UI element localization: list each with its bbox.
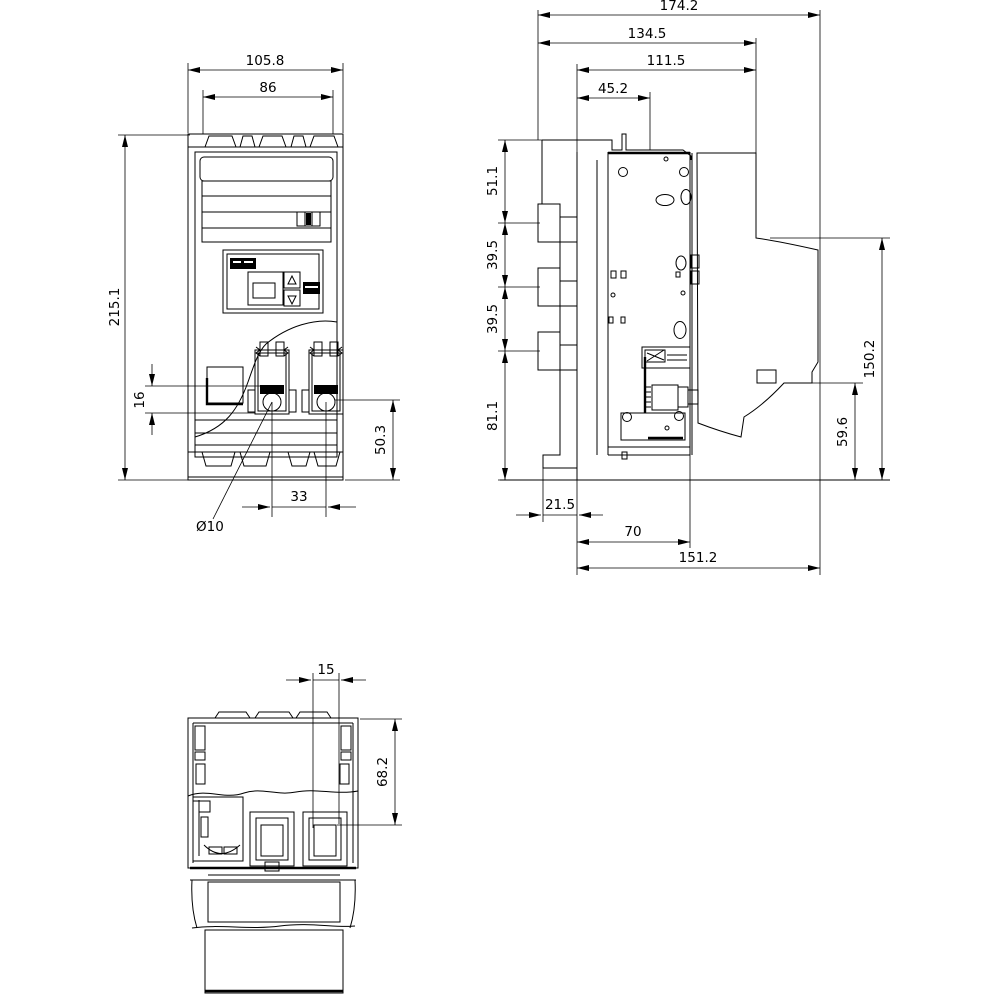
- mounting-plate-holes: [609, 157, 691, 339]
- front-control-panel: [223, 250, 323, 313]
- dim-side-lower-section-height: 81.1: [485, 351, 545, 480]
- tear-line: [188, 791, 358, 796]
- dim-side-overall-depth: 174.2: [538, 0, 820, 575]
- dim-label: 59.6: [835, 417, 851, 447]
- dim-side-top-section-height: 51.1: [485, 140, 545, 223]
- dim-bottom-slot-width: 15: [286, 662, 366, 828]
- dim-label: 111.5: [647, 53, 686, 69]
- dim-label: 81.1: [485, 401, 501, 431]
- dim-side-base-front-offset: 21.5: [516, 468, 603, 575]
- dim-label: 68.2: [375, 757, 391, 787]
- bottom-view: 15 68.2: [188, 662, 402, 993]
- dim-side-upper-depth: 111.5: [577, 53, 756, 152]
- dim-front-hole-spacing: 33: [242, 402, 356, 517]
- dim-front-hole-diameter: Ø10: [196, 402, 272, 535]
- dim-label: 86: [259, 80, 276, 96]
- arrow-down-icon: [288, 296, 296, 304]
- dim-side-pole-pitch-upper: 39.5: [485, 223, 540, 287]
- brand-badge: [230, 258, 256, 269]
- dim-label: 45.2: [598, 81, 628, 97]
- dim-front-mounting-width: 86: [203, 80, 333, 134]
- dim-front-overall-height: 215.1: [107, 135, 190, 480]
- side-view: 174.2 134.5 111.5 45.2 51.1 39.5: [485, 0, 890, 575]
- dim-label: 33: [290, 489, 307, 505]
- dim-bottom-section-depth: 68.2: [337, 719, 402, 825]
- dim-label: 50.3: [373, 425, 389, 455]
- dim-label: Ø10: [196, 519, 224, 535]
- bottom-left-module: [193, 797, 243, 861]
- dim-label: 151.2: [679, 550, 718, 566]
- dim-label: 105.8: [246, 53, 285, 69]
- dim-side-base-overall-depth: 151.2: [577, 550, 820, 568]
- dimension-drawing: 105.8 86 215.1 16 50.3: [0, 0, 1000, 1000]
- dim-label: 215.1: [107, 288, 123, 327]
- dim-label: 39.5: [485, 304, 501, 334]
- arrow-up-icon: [288, 276, 296, 284]
- bottom-device-outline: [188, 712, 358, 993]
- button-up: [284, 272, 300, 288]
- dim-label: 174.2: [660, 0, 699, 14]
- dim-side-base-depth: 70: [577, 455, 690, 548]
- terminal-clamp-detail: [621, 347, 698, 440]
- dim-side-pole-pitch-lower: 39.5: [485, 287, 540, 351]
- bottom-terminal-opening-2: [303, 812, 347, 866]
- dim-label: 15: [317, 662, 334, 678]
- dim-side-rear-lower-height: 59.6: [790, 383, 863, 480]
- side-terminal-tabs: [538, 204, 577, 370]
- dim-label: 134.5: [628, 26, 667, 42]
- dim-side-rear-height: 150.2: [770, 238, 890, 480]
- drawing-page: 105.8 86 215.1 16 50.3: [0, 0, 1000, 1000]
- dim-label: 21.5: [545, 497, 575, 513]
- dim-label: 51.1: [485, 166, 501, 196]
- front-connector-block: [297, 212, 320, 226]
- front-view: 105.8 86 215.1 16 50.3: [107, 53, 400, 535]
- dim-label: 150.2: [862, 340, 878, 379]
- dim-label: 39.5: [485, 240, 501, 270]
- side-device-outline: [500, 134, 890, 480]
- dim-label: 16: [132, 391, 148, 408]
- rear-shell: [697, 153, 818, 437]
- dim-front-base-height: 50.3: [335, 400, 400, 480]
- bottom-terminal-opening-1: [250, 812, 294, 871]
- dim-label: 70: [624, 524, 641, 540]
- front-device-outline: [188, 134, 343, 480]
